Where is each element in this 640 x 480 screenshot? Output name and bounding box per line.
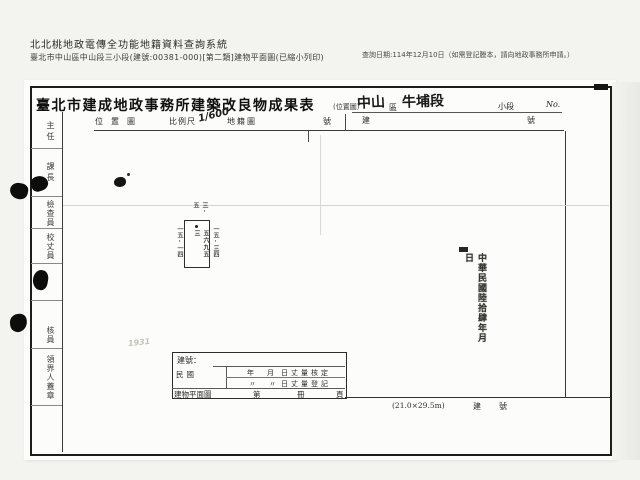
right-column-line: [565, 131, 566, 398]
box-line: [213, 366, 345, 367]
strip-right-border: [62, 112, 63, 452]
strip-divider: [31, 196, 62, 197]
no-char-right: 號: [527, 115, 535, 126]
footer-building-no-label: 建號: [473, 401, 525, 412]
form-title: 臺北市建成地政事務所建築改良物成果表: [36, 95, 315, 115]
date-stamp: 中華民國陸拾肆年月日: [462, 253, 488, 349]
title-underline: [352, 112, 562, 113]
building-char: 建: [362, 115, 370, 126]
location-map-label: 位置圖: [95, 116, 143, 127]
section-handwritten: 牛埔段: [402, 90, 445, 111]
document-subtitle: 臺北市中山區中山段三小段(建號:00381-000)[第二類]建物平面圖(已縮小…: [30, 52, 324, 63]
strip-divider: [31, 348, 62, 349]
building-no-field-label: 建號：: [177, 355, 201, 366]
paper-edge-shade: [612, 82, 640, 460]
strip-divider: [31, 148, 62, 149]
plan-top-dimension: 三·五: [191, 202, 209, 220]
ink-dot-small: [127, 173, 130, 176]
ink-dot: [114, 177, 126, 187]
strip-section-chief: 主任: [34, 118, 56, 146]
book-label: 冊: [297, 389, 305, 400]
band-tick: [308, 131, 309, 142]
strip-section-checker: 核員: [34, 322, 56, 347]
stamp-corner-mark: [459, 247, 468, 252]
fold-crease-vertical: [320, 135, 321, 235]
era-label: 民國: [176, 369, 197, 380]
no-label: No.: [546, 100, 560, 109]
plan-inner-text: 五六九五三: [192, 230, 210, 264]
band-divider: [345, 114, 346, 131]
strip-divider: [31, 263, 62, 264]
district-handwritten: 中山: [356, 91, 385, 112]
plan-dot: [195, 225, 198, 228]
page-label: 頁: [336, 389, 344, 400]
plan-right-dimension: 一五·三四: [211, 226, 220, 266]
band-underline: [94, 130, 564, 131]
building-plan-label: 建物平面圖: [174, 389, 212, 400]
no-char-left: 號: [323, 116, 331, 127]
strip-divider: [31, 228, 62, 229]
system-title: 北北桃地政電傳全功能地籍資料查詢系統: [30, 36, 228, 51]
cadastral-map-label: 地籍圖: [227, 116, 257, 127]
strip-section-inspector: 檢查員: [34, 199, 56, 227]
paper-size-note: (21.0×29.5m): [392, 401, 445, 410]
subsection-label: 小段: [498, 101, 514, 112]
corner-ink-mark: [594, 84, 608, 90]
box-line: [226, 377, 345, 378]
ordinal-label: 第: [253, 389, 261, 400]
strip-divider: [31, 300, 62, 301]
footer-line: [345, 397, 610, 398]
position-map-note: (位置圖): [333, 102, 359, 112]
query-date: 查詢日期:114年12月10日（如需登記謄本，請向地政事務所申請。）: [362, 50, 574, 60]
strip-divider: [31, 405, 62, 406]
plan-left-dimension: 一五·一四: [175, 226, 184, 266]
scale-label: 比例尺: [169, 116, 196, 127]
strip-section-recipient-seal: 領界人蓋章: [34, 350, 56, 404]
fold-crease-horizontal: [63, 205, 609, 206]
strip-section-surveyor: 校丈員: [34, 231, 56, 261]
